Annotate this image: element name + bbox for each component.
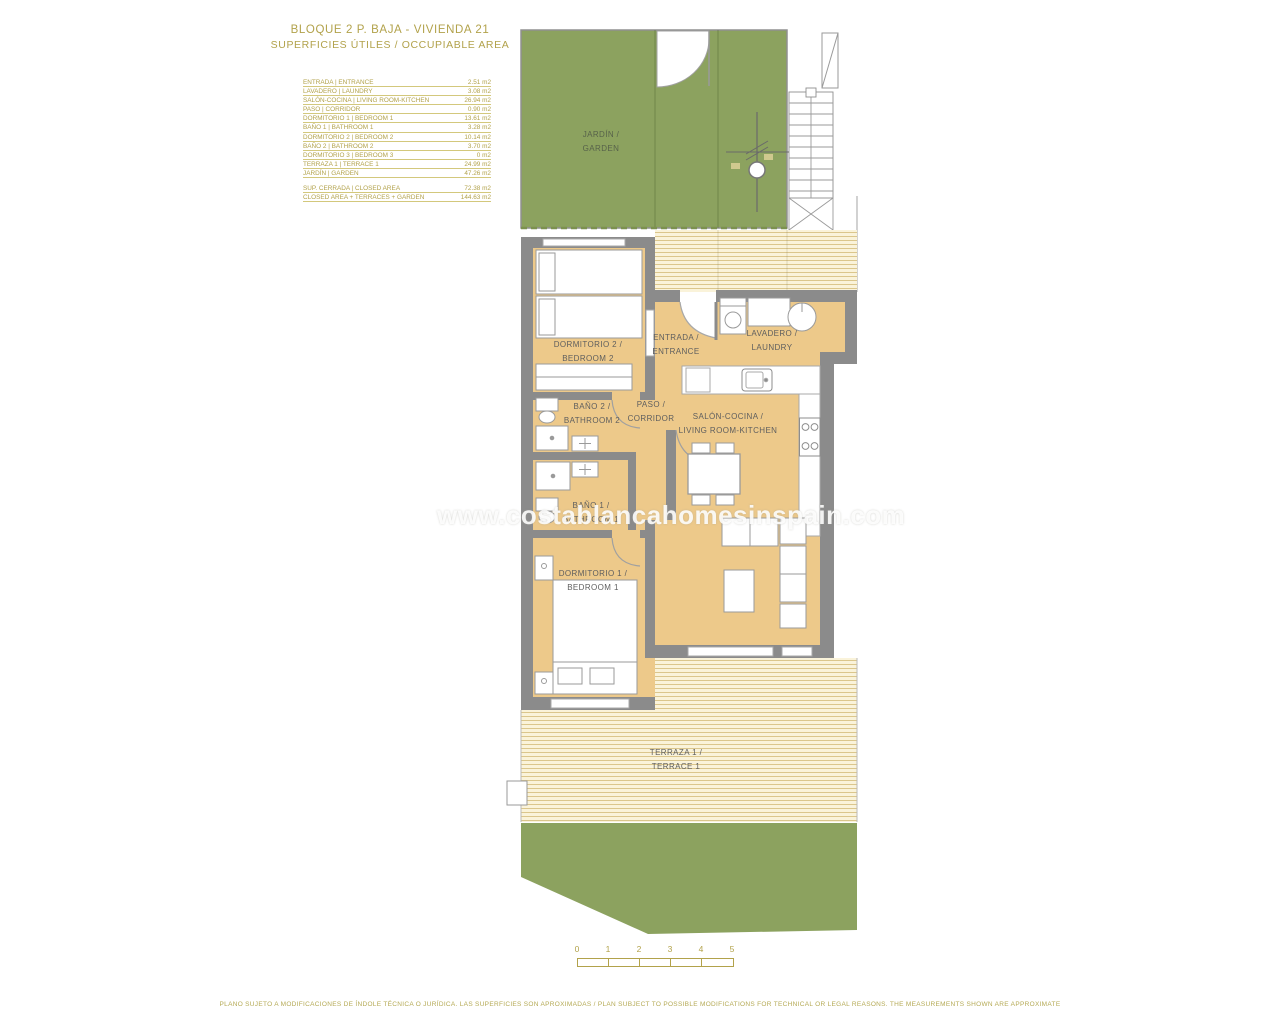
label-garden: JARDÍN /GARDEN [583,128,620,155]
plan-title-line2: SUPERFICIES ÚTILES / OCCUPIABLE AREA [250,38,530,52]
scale-tick-label: 4 [699,944,704,954]
label-terrace1: TERRAZA 1 /TERRACE 1 [650,746,702,773]
legend-row: ENTRADA | ENTRANCE2.51 m2 [303,78,491,87]
legend-row: BAÑO 1 | BATHROOM 13.28 m2 [303,123,491,132]
legend-row: PASO | CORRIDOR0.90 m2 [303,105,491,114]
legend-row: SALÓN-COCINA | LIVING ROOM-KITCHEN26.94 … [303,96,491,105]
legend-row: DORMITORIO 1 | BEDROOM 113.61 m2 [303,114,491,123]
legend-row: DORMITORIO 3 | BEDROOM 30 m2 [303,151,491,160]
disclaimer-text: PLANO SUJETO A MODIFICACIONES DE ÍNDOLE … [140,1001,1140,1008]
scale-tick-label: 5 [730,944,735,954]
scale-tick-label: 3 [668,944,673,954]
garden-area [521,30,787,228]
upper-deck [655,230,857,292]
bedroom2-furniture [536,250,642,390]
scale-bar-rule [577,958,734,967]
legend-row: TERRAZA 1 | TERRACE 124.99 m2 [303,160,491,169]
legend-row: LAVADERO | LAUNDRY3.08 m2 [303,87,491,96]
label-living: SALÓN-COCINA /LIVING ROOM-KITCHEN [679,410,778,437]
legend-row: DORMITORIO 2 | BEDROOM 210.14 m2 [303,133,491,142]
area-legend: ENTRADA | ENTRANCE2.51 m2 LAVADERO | LAU… [303,78,491,202]
label-bathroom2: BAÑO 2 /BATHROOM 2 [564,400,620,427]
legend-total-row: CLOSED AREA + TERRACES + GARDEN144.63 m2 [303,193,491,202]
scale-tick-label: 1 [606,944,611,954]
label-bedroom2: DORMITORIO 2 /BEDROOM 2 [554,338,623,365]
legend-rows: ENTRADA | ENTRANCE2.51 m2 LAVADERO | LAU… [303,78,491,178]
legend-totals: SUP. CERRADA | CLOSED AREA72.38 m2 CLOSE… [303,184,491,202]
bottom-garden-area [521,823,857,934]
scale-tick-label: 2 [637,944,642,954]
legend-total-row: SUP. CERRADA | CLOSED AREA72.38 m2 [303,184,491,193]
legend-row: JARDÍN | GARDEN47.26 m2 [303,169,491,178]
scale-bar: 0 1 2 3 4 5 [577,944,733,970]
plan-title-line1: BLOQUE 2 P. BAJA - VIVIENDA 21 [250,23,530,38]
watermark-text: www.costablancahomesinspain.com [437,500,905,531]
plan-title: BLOQUE 2 P. BAJA - VIVIENDA 21 SUPERFICI… [250,23,530,52]
label-entrance: ENTRADA /ENTRANCE [652,331,699,358]
hatch-box [822,33,838,88]
scale-tick-label: 0 [575,944,580,954]
label-bedroom1: DORMITORIO 1 /BEDROOM 1 [559,567,628,594]
legend-row: BAÑO 2 | BATHROOM 23.70 m2 [303,142,491,151]
label-corridor: PASO /CORRIDOR [628,398,675,425]
label-laundry: LAVADERO /LAUNDRY [747,327,798,354]
utility-box [507,781,527,805]
